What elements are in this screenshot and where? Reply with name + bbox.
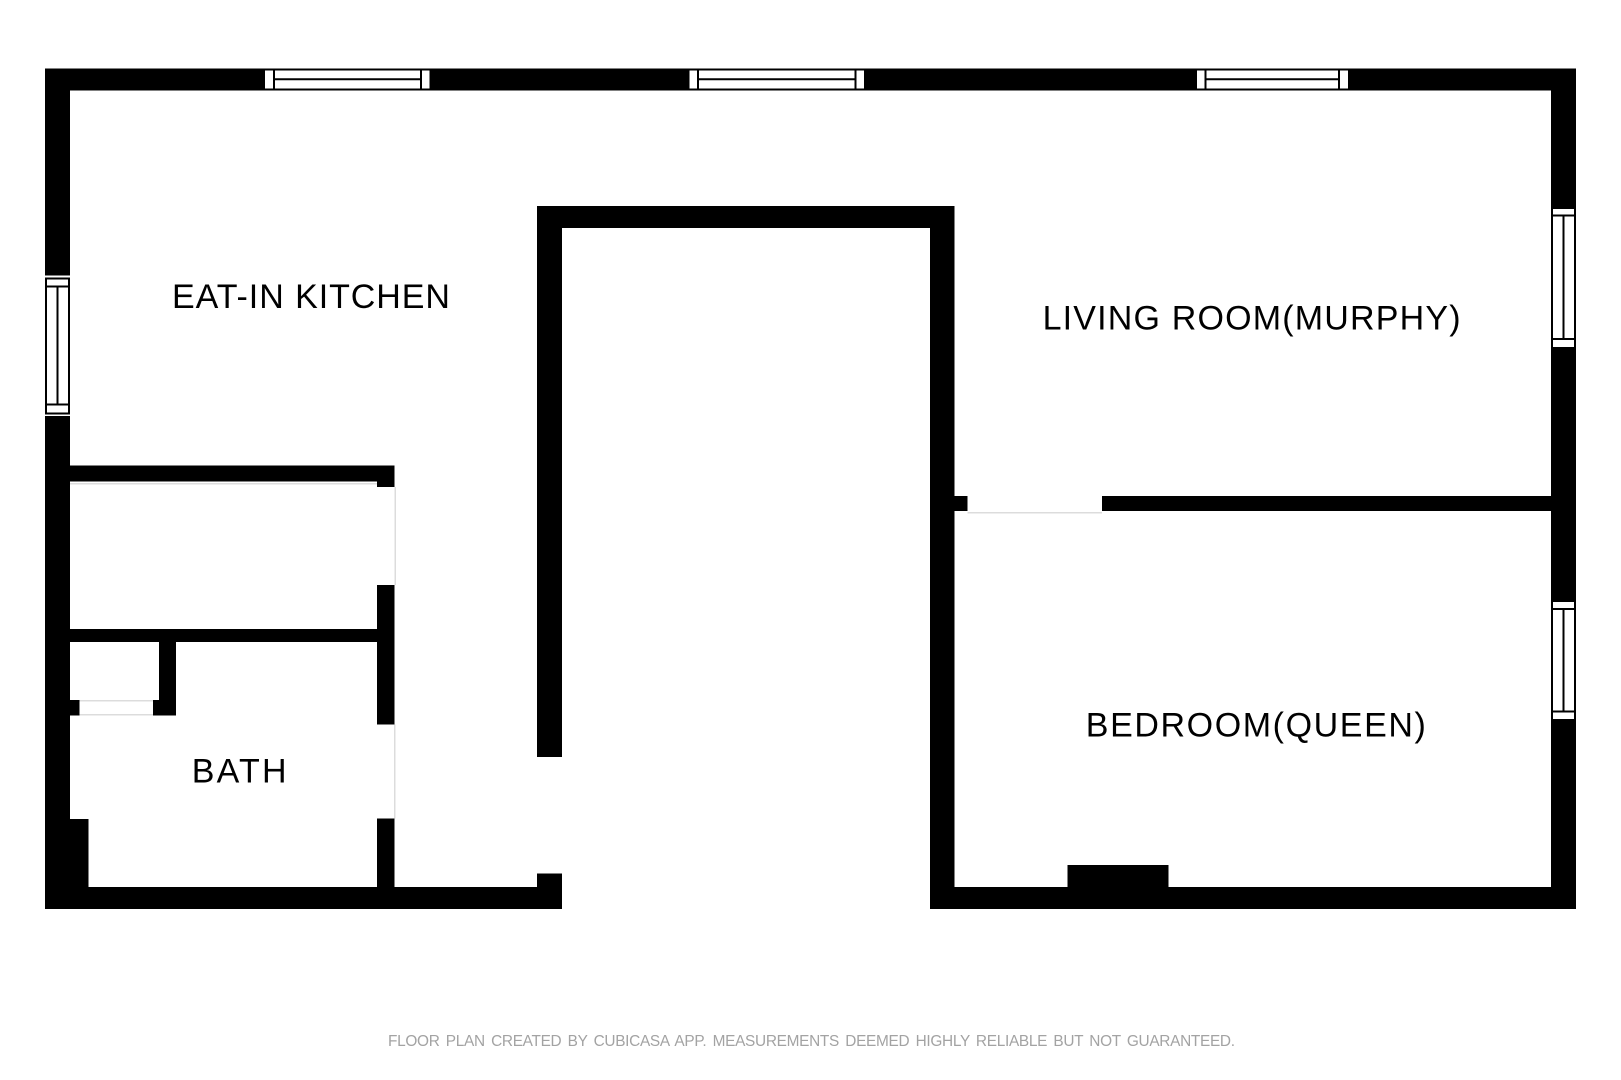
svg-text:FLOOR PLAN CREATED BY CUBICASA: FLOOR PLAN CREATED BY CUBICASA APP. MEAS… xyxy=(388,1033,1235,1050)
svg-text:LIVING ROOM(MURPHY): LIVING ROOM(MURPHY) xyxy=(1043,300,1462,338)
svg-text:BEDROOM(QUEEN): BEDROOM(QUEEN) xyxy=(1086,707,1428,745)
svg-text:BATH: BATH xyxy=(192,753,289,791)
svg-text:EAT-IN KITCHEN: EAT-IN KITCHEN xyxy=(172,278,451,316)
